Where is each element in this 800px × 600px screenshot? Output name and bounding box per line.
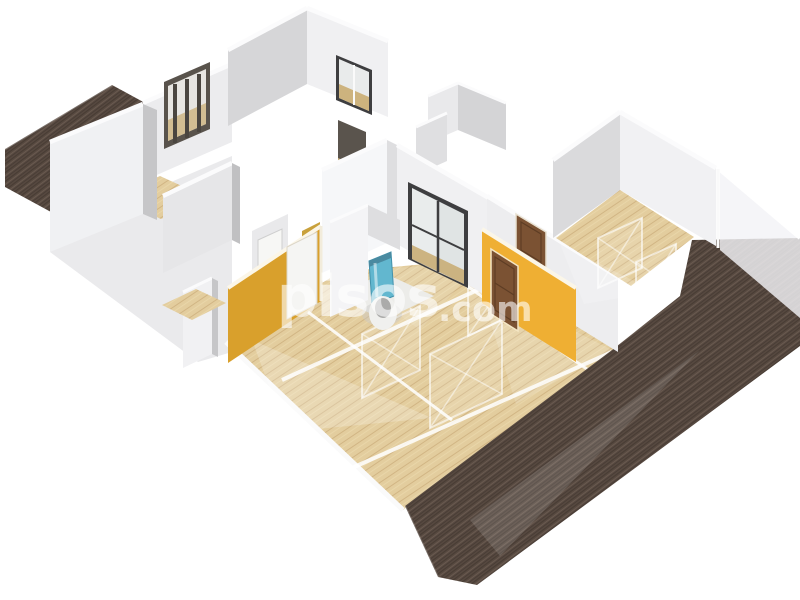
- wall-side-face: [232, 163, 240, 244]
- wall-side-face: [212, 278, 218, 357]
- watermark-suffix: .com: [438, 290, 533, 330]
- wall-side-face: [143, 104, 157, 220]
- watermark-brand: pisos: [277, 264, 439, 330]
- floor-plan-3d-render: pisos .com: [0, 0, 800, 600]
